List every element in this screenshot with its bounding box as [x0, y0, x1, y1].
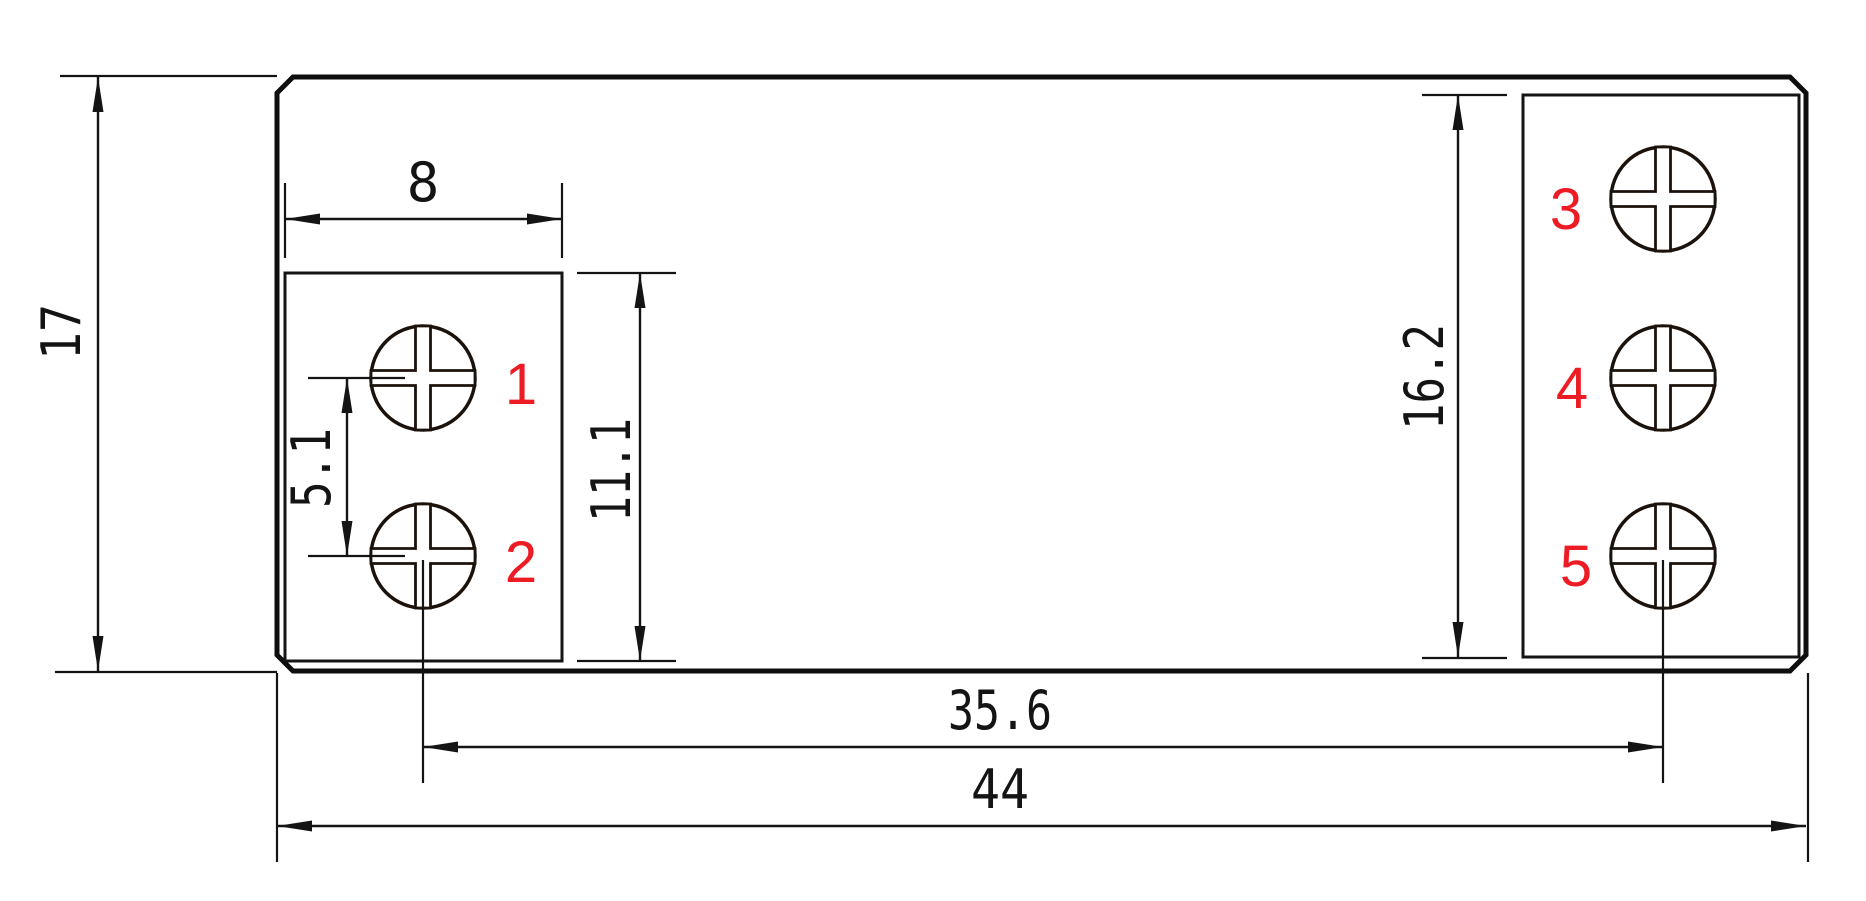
dimension-value: 35.6: [948, 679, 1052, 742]
dimension-value: 16.2: [1393, 324, 1456, 430]
dimension-overall-height: 17: [30, 76, 277, 672]
dimension-value: 44: [971, 758, 1029, 821]
dimension-left-box-height: 11.1: [577, 273, 676, 661]
terminal-label-1: 1: [505, 352, 537, 417]
dimension-terminal-pitch: 5.1: [280, 378, 405, 556]
dimension-terminal-box-width: 8: [285, 151, 562, 258]
terminal-label-2: 2: [505, 530, 537, 595]
dimension-value: 11.1: [580, 418, 643, 522]
dimension-value: 8: [407, 151, 440, 214]
screw-terminal-4: [1611, 326, 1715, 430]
dimension-value: 5.1: [280, 428, 343, 508]
dimension-right-box-height: 16.2: [1393, 95, 1507, 658]
terminal-label-3: 3: [1550, 177, 1582, 242]
technical-drawing: 1 2 3 4 5 17 8 5.1 11.1 16.2: [0, 0, 1866, 901]
terminal-label-5: 5: [1560, 534, 1592, 599]
terminal-label-4: 4: [1556, 356, 1588, 421]
screw-terminal-3: [1611, 147, 1715, 251]
drawing-canvas: 1 2 3 4 5 17 8 5.1 11.1 16.2: [0, 0, 1866, 901]
dimension-value: 17: [30, 304, 93, 360]
